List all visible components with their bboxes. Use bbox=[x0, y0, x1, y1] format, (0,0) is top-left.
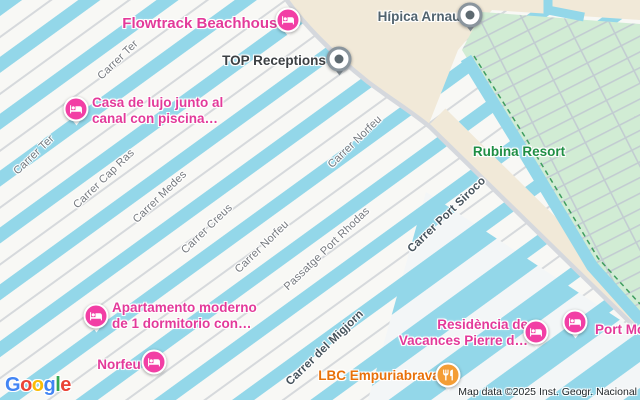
poi-label-line: Vacances Pierre d… bbox=[399, 333, 528, 349]
pin-apartamento-moderno[interactable] bbox=[84, 304, 109, 329]
restaurant-pin-bubble bbox=[436, 363, 461, 388]
poi-label-port-mo[interactable]: Port Mo bbox=[595, 322, 640, 338]
poi-label-line: de 1 dormitorio con… bbox=[112, 316, 257, 332]
pin-flowtrack-beachhouse[interactable] bbox=[276, 8, 301, 33]
poi-label-line: Casa de lujo junto al bbox=[92, 95, 223, 111]
google-logo-letter: o bbox=[32, 374, 44, 396]
lodging-pin-bubble bbox=[563, 310, 588, 335]
bed-icon bbox=[569, 316, 582, 329]
google-logo[interactable]: Google bbox=[5, 374, 71, 397]
google-logo-letter: G bbox=[5, 374, 20, 396]
restaurant-icon bbox=[442, 369, 455, 382]
poi-label-rubina-resort[interactable]: Rubina Resort bbox=[473, 144, 565, 160]
bed-icon bbox=[90, 310, 103, 323]
poi-label-apartamento-moderno[interactable]: Apartamento moderno de 1 dormitorio con… bbox=[112, 300, 257, 332]
pin-top-receptions[interactable] bbox=[327, 47, 352, 72]
bed-icon bbox=[148, 356, 161, 369]
google-logo-letter: o bbox=[20, 374, 32, 396]
poi-label-top-receptions[interactable]: TOP Receptions bbox=[222, 53, 326, 69]
poi-label-hipica-arnau[interactable]: Hípica Arnau bbox=[378, 9, 461, 25]
poi-label-residencia-pierre[interactable]: Residència de Vacances Pierre d… bbox=[399, 317, 528, 349]
google-logo-letter: e bbox=[60, 374, 71, 396]
map-attribution: Map data ©2025 Inst. Geogr. Nacional bbox=[458, 386, 637, 398]
poi-label-norfeu[interactable]: Norfeu bbox=[97, 357, 141, 373]
bed-icon bbox=[530, 326, 543, 339]
poi-label-line: canal con piscina… bbox=[92, 111, 223, 127]
lodging-pin-bubble bbox=[142, 350, 167, 375]
pin-residencia-pierre[interactable] bbox=[524, 320, 549, 345]
poi-label-line: Residència de bbox=[399, 317, 528, 333]
lodging-pin-bubble bbox=[276, 8, 301, 33]
poi-label-flowtrack-beachhouse[interactable]: Flowtrack Beachhouse bbox=[122, 16, 285, 32]
lodging-pin-bubble bbox=[84, 304, 109, 329]
pin-casa-de-lujo[interactable] bbox=[64, 97, 89, 122]
bed-icon bbox=[282, 14, 295, 27]
poi-label-casa-de-lujo[interactable]: Casa de lujo junto al canal con piscina… bbox=[92, 95, 223, 127]
poi-label-lbc-empuriabrava[interactable]: LBC Empuriabrava bbox=[318, 368, 440, 384]
lodging-pin-bubble bbox=[524, 320, 549, 345]
location-dot-icon bbox=[458, 3, 483, 28]
lodging-pin-bubble bbox=[64, 97, 89, 122]
pin-hipica-arnau[interactable] bbox=[458, 3, 483, 28]
map-viewport[interactable]: Carrer Ter Carrer Ter Carrer Cap Ras Car… bbox=[0, 0, 640, 400]
pin-norfeu[interactable] bbox=[142, 350, 167, 375]
google-logo-letter: g bbox=[44, 374, 56, 396]
bed-icon bbox=[70, 103, 83, 116]
location-dot-icon bbox=[327, 47, 352, 72]
pin-lbc-empuriabrava[interactable] bbox=[436, 363, 461, 388]
poi-label-line: Apartamento moderno bbox=[112, 300, 257, 316]
pin-port-mo[interactable] bbox=[563, 310, 588, 335]
